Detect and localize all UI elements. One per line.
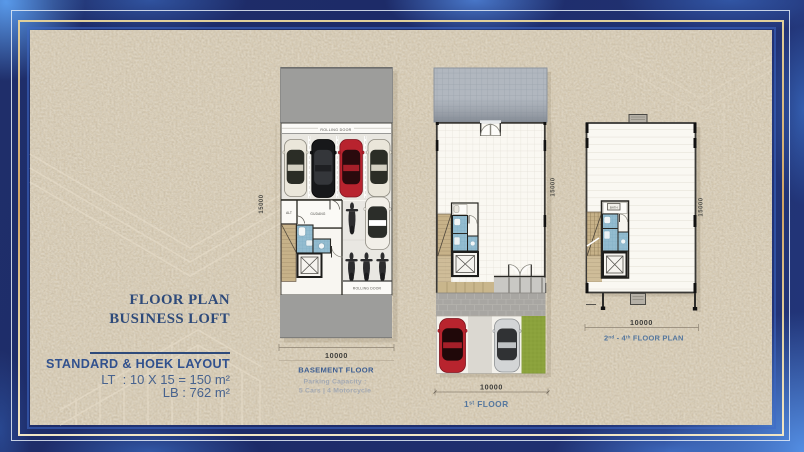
- svg-text:ALT: ALT: [286, 211, 292, 215]
- svg-text:10000: 10000: [480, 383, 503, 392]
- svg-text:15000: 15000: [551, 177, 557, 196]
- svg-text:2nd - 4th FLOOR PLAN: 2nd - 4th FLOOR PLAN: [604, 334, 684, 343]
- svg-text:5 Cars | 4 Motorcycle: 5 Cars | 4 Motorcycle: [299, 388, 371, 395]
- svg-text:15000: 15000: [259, 194, 265, 213]
- svg-text:BASEMENT FLOOR: BASEMENT FLOOR: [298, 366, 374, 375]
- svg-text:GUDANG: GUDANG: [310, 212, 326, 216]
- svg-text:15000: 15000: [699, 197, 705, 216]
- svg-text:Parking Capacity :: Parking Capacity :: [304, 379, 367, 386]
- svg-text:BATH: BATH: [610, 205, 618, 209]
- svg-text:ROLLING DOOR: ROLLING DOOR: [320, 128, 351, 132]
- svg-text:10000: 10000: [630, 318, 653, 327]
- svg-text:1st FLOOR: 1st FLOOR: [464, 399, 509, 409]
- svg-text:10000: 10000: [325, 351, 348, 360]
- svg-text:ROLLING DOOR: ROLLING DOOR: [353, 287, 382, 291]
